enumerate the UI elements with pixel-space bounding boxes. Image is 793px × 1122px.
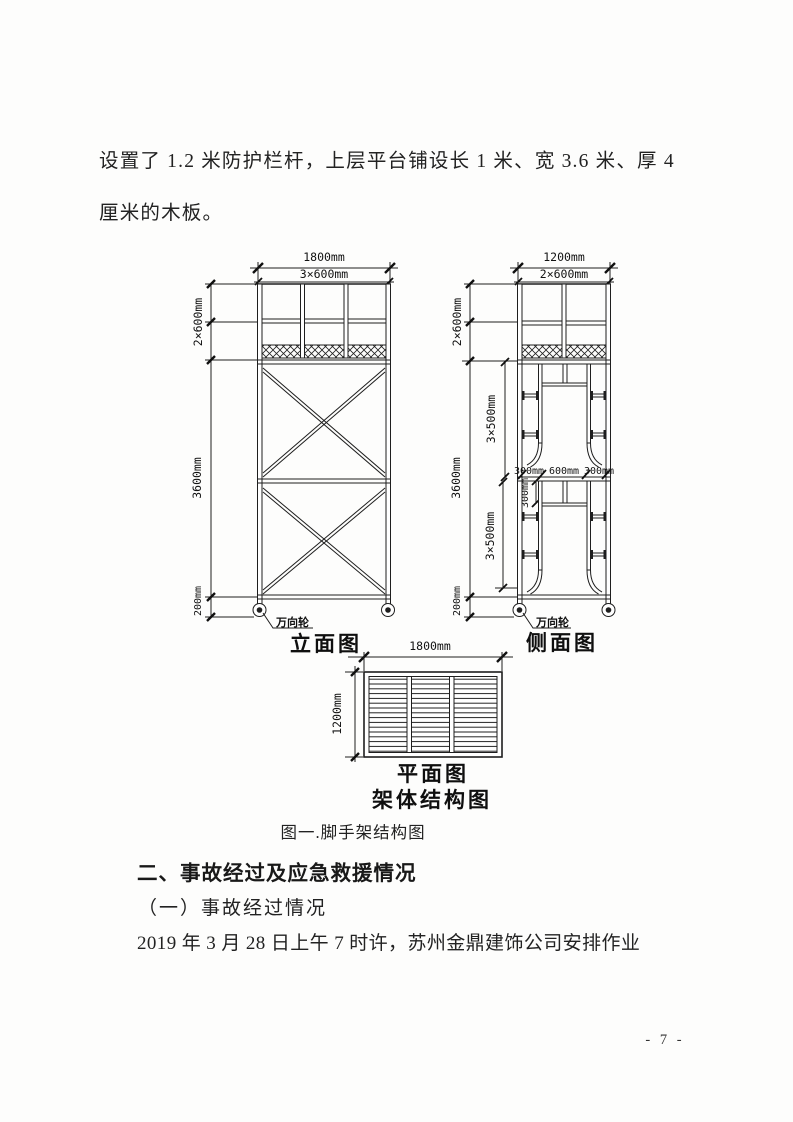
page-number: - 7 -: [615, 1032, 715, 1049]
side-dim-bays: 2×600mm: [540, 267, 589, 281]
plan-view-title: 平面图: [397, 762, 469, 786]
front-lower-x-brace: [263, 488, 385, 594]
side-dim-guard-height: 2×600mm: [450, 298, 464, 347]
side-dim-mid-center: 600mm: [549, 466, 579, 477]
front-wheel-label: 万向轮: [275, 615, 309, 629]
side-dim-body-height: 3600mm: [449, 457, 463, 499]
side-dim-wheel-height: 200mm: [452, 586, 463, 616]
side-lower-bay: [522, 481, 606, 594]
section-heading: 二、事故经过及应急救援情况: [137, 856, 417, 886]
front-inner-post-2: [344, 284, 348, 358]
side-inner-post: [562, 284, 566, 358]
body-paragraph-line: 2019 年 3 月 28 日上午 7 时许，苏州金鼎建饰公司安排作业: [137, 928, 640, 955]
document-page: 设置了 1.2 米防护栏杆，上层平台铺设长 1 米、宽 3.6 米、厚 4 厘米…: [0, 0, 793, 1122]
side-right-post: [606, 284, 611, 606]
side-caster-wheels: [513, 604, 615, 617]
figure-caption: 图一.脚手架结构图: [153, 819, 553, 843]
plan-deck-slats: [369, 677, 497, 753]
side-dim-total-width: 1200mm: [543, 250, 585, 264]
front-left-post: [258, 284, 263, 606]
front-upper-x-brace: [263, 368, 385, 477]
plan-dim-depth: 1200mm: [330, 693, 344, 735]
plan-divider-1: [407, 677, 412, 753]
plan-dim-width: 1800mm: [409, 639, 451, 653]
side-dim-mid-left: 300mm: [514, 466, 544, 477]
front-dim-wheel-height: 200mm: [193, 586, 204, 616]
front-platform-hatch: [262, 345, 386, 358]
side-view-title: 侧面图: [526, 631, 598, 655]
front-caster-wheels: [253, 604, 395, 617]
front-dim-bays: 3×600mm: [300, 267, 349, 281]
front-dim-guard-height: 2×600mm: [191, 298, 205, 347]
side-dim-rungs-lower: 3×500mm: [483, 512, 497, 561]
side-wheel-label: 万向轮: [535, 615, 569, 629]
side-view-drawing: 1200mm 2×600mm 2×600mm 3600mm 200mm 3×50…: [449, 250, 618, 655]
side-upper-bay: [522, 364, 606, 467]
front-dim-body-height: 3600mm: [190, 457, 204, 499]
side-left-post: [518, 284, 523, 606]
front-inner-post-1: [301, 284, 305, 358]
side-dim-mid-right: 300mm: [584, 466, 614, 477]
side-dim-rungs-upper: 3×500mm: [484, 395, 498, 444]
front-view-title: 立面图: [290, 632, 362, 656]
plan-view-drawing: 1800mm 1200mm 平面图 架体结构图: [330, 639, 513, 812]
front-dim-total-width: 1800mm: [303, 250, 345, 264]
subsection-heading: （一）事故经过情况: [138, 893, 327, 920]
plan-divider-2: [450, 677, 455, 753]
front-view-drawing: 1800mm 3×600mm 2×600mm 3600mm 200mm: [190, 250, 398, 656]
front-right-post: [386, 284, 391, 606]
assembly-title: 架体结构图: [372, 788, 492, 812]
